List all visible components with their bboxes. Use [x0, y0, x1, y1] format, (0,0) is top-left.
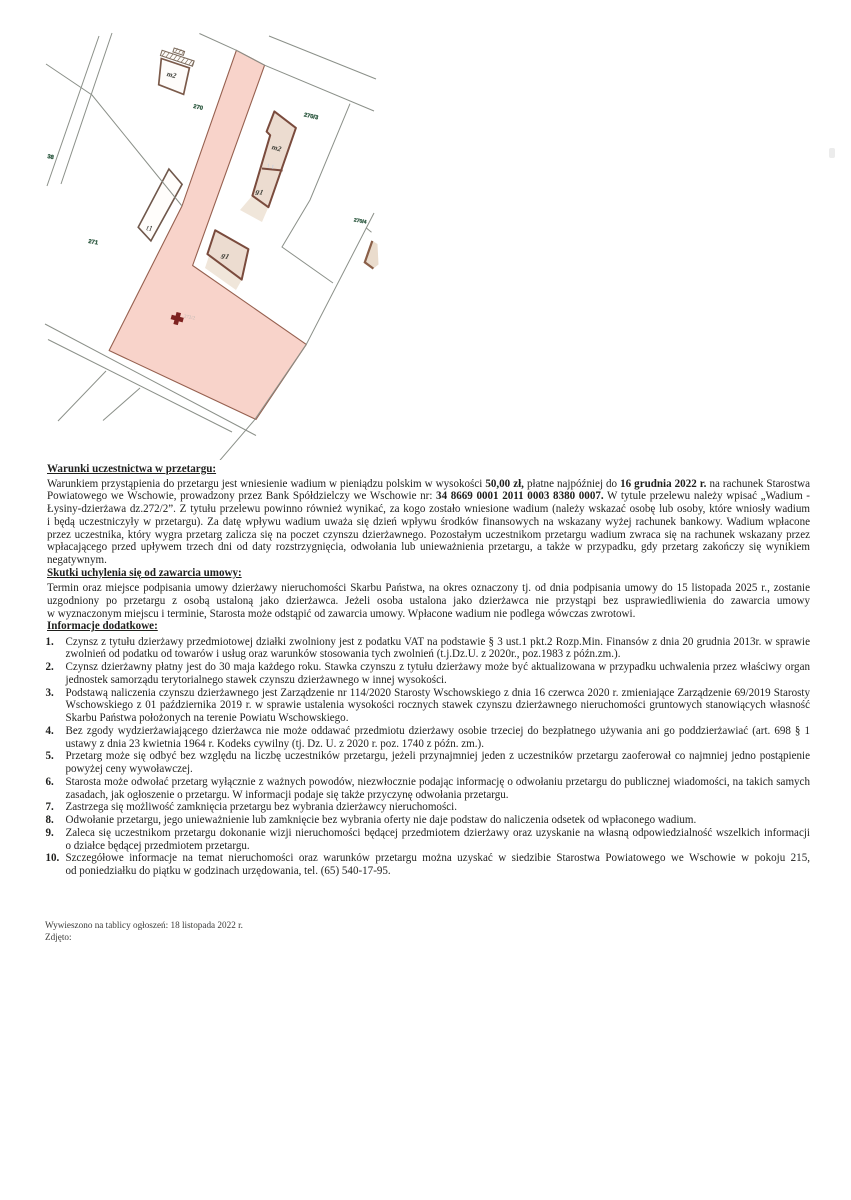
- svg-text:270/3: 270/3: [303, 112, 319, 121]
- svg-text:38: 38: [47, 154, 55, 161]
- svg-text:271: 271: [88, 239, 99, 247]
- svg-text:270/4: 270/4: [353, 217, 367, 225]
- svg-text:270: 270: [193, 104, 204, 112]
